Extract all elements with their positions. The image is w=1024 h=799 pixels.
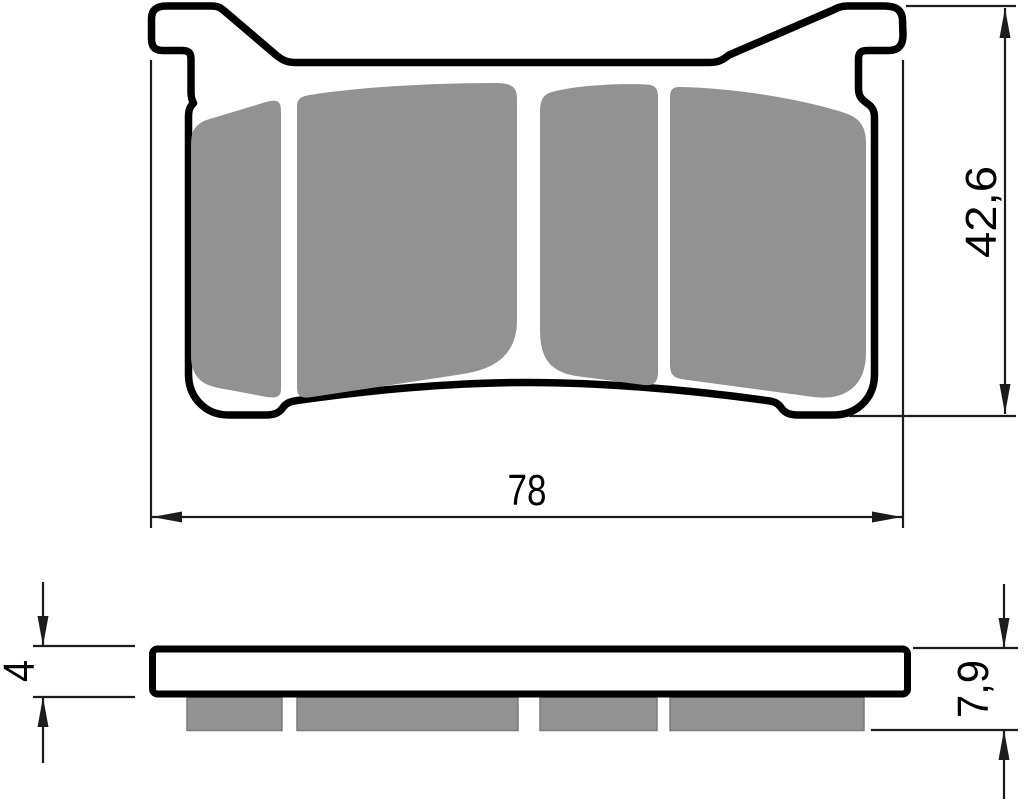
- dimension-plate-thickness: 4: [0, 582, 135, 763]
- brake-pad-technical-drawing: 78 42,6 4: [0, 0, 1024, 799]
- friction-block-4: [670, 698, 864, 731]
- arrowhead-down: [1000, 384, 1011, 414]
- technical-drawing-canvas: 78 42,6 4: [0, 0, 1024, 799]
- width-dimension-label: 78: [508, 466, 547, 515]
- friction-segment-2: [297, 83, 517, 398]
- arrowhead-up: [999, 730, 1010, 760]
- friction-segment-4: [670, 87, 866, 398]
- arrowhead-up: [1000, 8, 1011, 38]
- top-view: [152, 6, 904, 415]
- arrowhead-up: [38, 697, 49, 727]
- friction-block-3: [540, 698, 657, 731]
- side-view: [153, 649, 908, 731]
- arrowhead-left: [152, 512, 182, 523]
- total-thickness-label: 7,9: [949, 660, 998, 718]
- arrowhead-down: [999, 618, 1010, 648]
- plate-thickness-label: 4: [0, 660, 44, 682]
- friction-block-1: [187, 698, 282, 731]
- arrowhead-down: [38, 616, 49, 646]
- friction-segment-3: [540, 84, 658, 385]
- friction-block-2: [297, 698, 518, 731]
- backing-plate-profile: [153, 649, 908, 694]
- arrowhead-right: [872, 512, 902, 523]
- height-dimension-label: 42,6: [957, 166, 1006, 258]
- friction-segment-1: [191, 101, 281, 398]
